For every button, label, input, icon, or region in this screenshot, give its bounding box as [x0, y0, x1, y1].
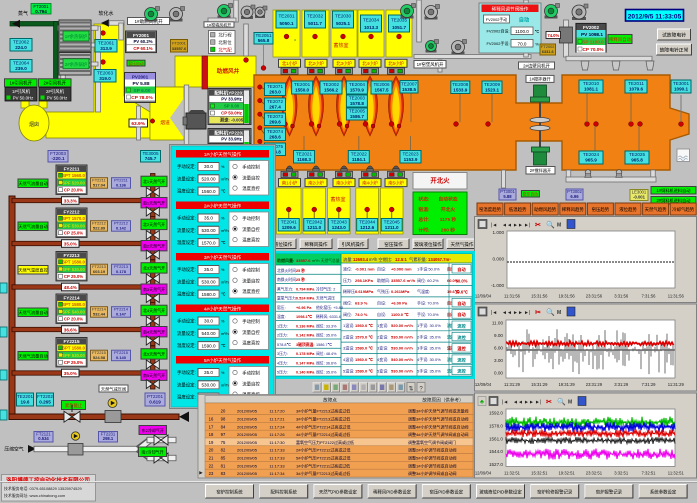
- svg-text:北4小炉: 北4小炉: [362, 60, 378, 67]
- svg-text:|◄: |◄: [491, 310, 497, 316]
- svg-text:4#小炉气量FT2214过高或过低: 4#小炉气量FT2214过高或过低: [296, 431, 350, 437]
- svg-text:流控: 流控: [457, 368, 466, 375]
- svg-text:1580.0 ℃: 1580.0 ℃: [355, 368, 373, 373]
- svg-text:11:32:51: 11:32:51: [668, 471, 685, 476]
- svg-text:1578.8: 1578.8: [350, 101, 364, 106]
- svg-text:530.00 m³/h: 530.00 m³/h: [391, 368, 413, 373]
- svg-text:系统参数设定: 系统参数设定: [650, 488, 677, 495]
- svg-text:阀位: 48.4%: 阀位: 48.4%: [316, 351, 337, 356]
- svg-text:1570.0: 1570.0: [201, 240, 215, 245]
- svg-text:TE2002: TE2002: [323, 82, 340, 87]
- svg-text:23:31:29: 23:31:29: [586, 382, 603, 387]
- svg-text:调整3#小炉天然气调节阀或自动阀: 调整3#小炉天然气调节阀或自动阀: [408, 416, 468, 422]
- svg-text:稀释风调节阀操作: 稀释风调节阀操作: [492, 5, 529, 12]
- svg-text:1533.9: 1533.9: [453, 87, 467, 92]
- svg-text:南1小炉: 南1小炉: [282, 179, 298, 186]
- svg-text:窑压操作: 窑压操作: [384, 241, 403, 248]
- svg-text:FY2001: FY2001: [133, 33, 150, 38]
- svg-text:SP 0.00: SP 0.00: [224, 104, 240, 109]
- svg-text:气温度:: 气温度:: [417, 288, 430, 294]
- svg-text:流控: 流控: [457, 356, 466, 363]
- svg-text:流量设定:: 流量设定:: [177, 381, 196, 388]
- svg-text:269.6: 269.6: [269, 119, 281, 124]
- svg-text:南换火时间:: 南换火时间:: [277, 277, 297, 282]
- svg-text:2手设: 35.0%: 2手设: 35.0%: [417, 333, 441, 339]
- svg-text:TE2030: TE2030: [335, 13, 352, 18]
- svg-text:南2小炉: 南2小炉: [308, 179, 324, 186]
- svg-text:M: M: [557, 223, 561, 229]
- svg-text:16: 16: [209, 417, 214, 422]
- svg-text:5变设:: 5变设:: [377, 367, 388, 373]
- svg-text:技术服务电话: 0379-65108829 1352597: 技术服务电话: 0379-65108829 13525974529: [4, 486, 82, 491]
- svg-text:m³/h: m³/h: [221, 280, 229, 284]
- svg-text:温度设定:: 温度设定:: [177, 239, 196, 246]
- svg-text:北5小炉: 北5小炉: [388, 60, 404, 67]
- svg-text:PV2001: PV2001: [132, 74, 149, 79]
- svg-text:-0.001: -0.001: [633, 195, 646, 200]
- svg-text:319.0: 319.0: [99, 76, 111, 81]
- svg-text:✂: ✂: [535, 222, 541, 229]
- svg-text:CP 70.0%: CP 70.0%: [582, 47, 604, 52]
- svg-text:流量自控: 流量自控: [242, 174, 260, 181]
- svg-text:530.00: 530.00: [201, 383, 215, 388]
- svg-text:TE2045: TE2045: [384, 219, 401, 224]
- svg-text:压力:: 压力:: [343, 277, 352, 283]
- svg-text:蒸气: 蒸气: [18, 10, 28, 17]
- svg-text:1手设: 30.0%: 1手设: 30.0%: [417, 322, 441, 328]
- svg-text:阀位:: 阀位:: [343, 311, 352, 317]
- svg-text:手动设定:: 手动设定:: [177, 318, 196, 325]
- svg-text:蓄热室: 蓄热室: [333, 42, 348, 49]
- svg-text:268.6: 268.6: [269, 134, 281, 139]
- svg-text:48.4%: 48.4%: [64, 285, 77, 290]
- svg-text:总计:: 总计:: [418, 216, 430, 223]
- svg-text:自动状态: 自动状态: [438, 196, 457, 203]
- svg-text:FT2001: FT2001: [172, 40, 187, 45]
- svg-text:天然气PID参数设定: 天然气PID参数设定: [319, 488, 358, 495]
- svg-text:温度直控: 温度直控: [242, 237, 260, 244]
- svg-text:软化水: 软化水: [98, 10, 113, 17]
- svg-text:11:31:56: 11:31:56: [668, 294, 685, 299]
- svg-text:1#搅拌器开: 1#搅拌器开: [529, 76, 550, 83]
- svg-text:2#小炉天然气操作: 2#小炉天然气操作: [204, 202, 242, 209]
- svg-text:75: 75: [221, 440, 226, 445]
- svg-text:稀释风趋势: 稀释风趋势: [562, 206, 585, 213]
- svg-text:565.8: 565.8: [258, 38, 270, 43]
- svg-text:CP 50.0Hz: CP 50.0Hz: [221, 111, 242, 116]
- svg-text:阀位: 35.0%: 阀位: 35.0%: [316, 333, 337, 338]
- svg-text:TE2034: TE2034: [363, 17, 380, 22]
- svg-text:2012/09/05: 2012/09/05: [237, 424, 258, 429]
- svg-text:3手设: 35.0%: 3手设: 35.0%: [417, 345, 441, 351]
- svg-text:PV 50.0Hz: PV 50.0Hz: [47, 96, 68, 101]
- svg-text:33.3%: 33.3%: [64, 199, 77, 204]
- svg-text:天然气流量自动: 天然气流量自动: [18, 180, 47, 187]
- svg-text:玻璃液位操作: 玻璃液位操作: [414, 241, 442, 248]
- svg-text:助燃风:: 助燃风:: [377, 277, 390, 283]
- svg-text:530.00: 530.00: [201, 280, 215, 285]
- svg-text:温度设定:: 温度设定:: [177, 291, 196, 298]
- svg-text:调整4#小炉天然气调节阀或自动阀: 调整4#小炉天然气调节阀或自动阀: [408, 431, 468, 437]
- svg-text:2温设:: 2温设:: [343, 333, 354, 339]
- svg-text:手动控制: 手动控制: [242, 318, 260, 325]
- svg-text:4变设:: 4变设:: [377, 356, 388, 362]
- svg-text:19:31:56: 19:31:56: [558, 294, 575, 299]
- svg-text:19:32:51: 19:32:51: [558, 471, 575, 476]
- svg-text:11:31:56: 11:31:56: [504, 294, 521, 299]
- svg-text:手设: 70.0%: 手设: 70.0%: [417, 311, 439, 317]
- svg-text:TE2011: TE2011: [628, 81, 644, 86]
- svg-text:蒸气压力:: 蒸气压力:: [277, 286, 293, 291]
- svg-text:M: M: [568, 400, 572, 406]
- svg-text:低温趋势: 低温趋势: [509, 206, 527, 213]
- svg-text:2#引风机开: 2#引风机开: [44, 80, 67, 87]
- svg-text:调整4#小炉天然气调节阀或自动阀: 调整4#小炉天然气调节阀或自动阀: [408, 423, 468, 429]
- svg-text:自设:: 自设:: [377, 266, 386, 272]
- svg-text:520.00 m³/h: 520.00 m³/h: [391, 323, 413, 328]
- svg-text:温控: 温控: [457, 345, 466, 352]
- svg-text:35.0: 35.0: [204, 267, 213, 272]
- svg-text:流量设定:: 流量设定:: [177, 330, 196, 337]
- svg-text:✂: ✂: [546, 399, 552, 406]
- svg-text:℃: ℃: [221, 293, 226, 297]
- svg-text:状态:: 状态:: [418, 196, 430, 203]
- svg-text:2012/09/05: 2012/09/05: [237, 463, 258, 468]
- svg-text:他化窑压: +5.88: 他化窑压: +5.88: [316, 305, 343, 310]
- svg-text:窑压自动: 窑压自动: [128, 61, 143, 66]
- svg-text:液位趋势: 液位趋势: [619, 206, 637, 213]
- svg-text:TE2022: TE2022: [351, 151, 368, 156]
- svg-text:计时:: 计时:: [418, 226, 430, 233]
- svg-text:74.0 %: 74.0 %: [355, 312, 368, 317]
- svg-text:调整2#小炉调节阀或自动阀: 调整2#小炉调节阀或自动阀: [408, 447, 456, 453]
- svg-text:0.136 MPa: 0.136 MPa: [296, 324, 315, 328]
- svg-text:PV 33.9Hz: PV 33.9Hz: [221, 137, 242, 142]
- svg-text:流量设定:: 流量设定:: [177, 175, 196, 182]
- svg-text:11:17:20: 11:17:20: [269, 409, 285, 414]
- svg-text:4压力:: 4压力:: [277, 360, 288, 365]
- svg-text:11:32:51: 11:32:51: [504, 471, 521, 476]
- svg-text:℃: ℃: [221, 241, 226, 245]
- svg-text:m³/h 空燃比:: m³/h 空燃比:: [369, 256, 392, 263]
- svg-text:阀位:: 阀位:: [343, 300, 352, 306]
- svg-text:5011.7: 5011.7: [308, 21, 322, 26]
- svg-text:263.0: 263.0: [269, 89, 281, 94]
- svg-text:TE2042: TE2042: [306, 219, 323, 224]
- svg-text:流量自控: 流量自控: [242, 380, 260, 387]
- svg-text:1090.1: 1090.1: [674, 87, 688, 92]
- svg-text:11:17:24: 11:17:24: [269, 424, 285, 429]
- svg-text:540.00 m³/h: 540.00 m³/h: [391, 357, 413, 362]
- svg-text:7:32:51: 7:32:51: [642, 471, 657, 476]
- svg-text:自设:: 自设:: [377, 311, 386, 317]
- svg-text:2#小炉气压PT2212过高或过低: 2#小炉气压PT2212过高或过低: [296, 447, 350, 453]
- svg-text:1570.0 ℃: 1570.0 ℃: [355, 334, 373, 339]
- svg-text:2012/09/05: 2012/09/05: [237, 417, 258, 422]
- svg-text:1#引风机: 1#引风机: [12, 88, 31, 95]
- svg-text:12/09/04: 12/09/04: [475, 471, 492, 476]
- svg-text:5#小炉天然气操作: 5#小炉天然气操作: [204, 357, 242, 364]
- svg-text:烟囱: 烟囱: [29, 121, 39, 128]
- svg-text:1变设:: 1变设:: [377, 322, 388, 328]
- svg-text:83: 83: [221, 471, 226, 476]
- svg-text:阀位: 36.6%: 阀位: 36.6%: [316, 360, 337, 365]
- svg-text:FY2214: FY2214: [63, 296, 80, 301]
- svg-text:20: 20: [209, 448, 214, 453]
- svg-text:35.0%: 35.0%: [64, 242, 77, 247]
- svg-text:手动控制: 手动控制: [242, 164, 260, 171]
- svg-text:南1天然气开: 南1天然气开: [143, 200, 165, 206]
- svg-text:南5天然气开: 南5天然气开: [143, 372, 165, 378]
- svg-text:CP 78.0%: CP 78.0%: [131, 95, 153, 101]
- svg-text:m³/h: m³/h: [221, 177, 229, 181]
- svg-text:74.0%: 74.0%: [547, 33, 559, 38]
- svg-text:故障点: 故障点: [323, 396, 337, 403]
- svg-text:试故障电铃: 试故障电铃: [662, 32, 686, 39]
- svg-text:TE2074: TE2074: [267, 129, 284, 134]
- svg-text:液位操作: 液位操作: [274, 241, 293, 248]
- svg-text:0.619MPa: 0.619MPa: [355, 289, 374, 294]
- svg-text:1.000: 1.000: [493, 230, 505, 235]
- svg-text:℃: ℃: [221, 190, 226, 194]
- svg-text:SPF 530.00: SPF 530.00: [62, 223, 85, 228]
- svg-text:19.6℃: 19.6℃: [455, 290, 468, 295]
- svg-text:天然气流量自动: 天然气流量自动: [18, 223, 47, 230]
- svg-text:TE2001: TE2001: [294, 82, 311, 87]
- svg-text:0.00: 0.00: [494, 371, 503, 376]
- svg-text:SPF 520.00: SPF 520.00: [62, 180, 85, 185]
- svg-text:m³/h: m³/h: [221, 332, 229, 336]
- svg-text:1567.5: 1567.5: [374, 88, 388, 93]
- svg-text:1527.0: 1527.0: [489, 462, 503, 467]
- svg-text:◄◄: ◄◄: [502, 310, 512, 316]
- svg-text:南5小炉: 南5小炉: [388, 179, 404, 186]
- svg-text:烟道: 烟道: [160, 119, 170, 126]
- svg-text:天然气进压: 天然气进压: [316, 296, 335, 301]
- svg-text:+6.00 Pa: +6.00 Pa: [391, 301, 408, 306]
- svg-text:18: 18: [209, 432, 214, 437]
- svg-text:温度设定:: 温度设定:: [177, 342, 196, 349]
- svg-text:TE2062: TE2062: [13, 39, 30, 44]
- svg-text:SPF 530.00: SPF 530.00: [62, 267, 85, 272]
- svg-text:FV2002自设:: FV2002自设:: [486, 28, 509, 34]
- svg-text:1586.7℃: 1586.7℃: [316, 343, 333, 347]
- svg-text:6331.6: 6331.6: [542, 49, 555, 54]
- svg-text:2012/09/05: 2012/09/05: [237, 409, 258, 414]
- svg-text:SP 6.00: SP 6.00: [134, 88, 151, 94]
- svg-text:33557.6: 33557.6: [296, 258, 311, 263]
- svg-text:530.00 m³/h: 530.00 m³/h: [391, 334, 413, 339]
- svg-text:81: 81: [221, 463, 226, 468]
- svg-text:3磁顶高温:: 3磁顶高温:: [296, 342, 315, 347]
- svg-text:1#窑墙风机开: 1#窑墙风机开: [207, 21, 231, 27]
- svg-text:2压力:: 2压力:: [277, 333, 288, 338]
- svg-text:1098.1℃: 1098.1℃: [296, 314, 313, 319]
- svg-text:天然气温度直控: 天然气温度直控: [18, 267, 48, 274]
- svg-text:自动: 自动: [457, 311, 466, 318]
- svg-text:►|: ►|: [524, 223, 530, 229]
- svg-text:窑炉控制系统: 窑炉控制系统: [216, 488, 243, 495]
- svg-text:22: 22: [209, 463, 214, 468]
- svg-text:CP 20.0%: CP 20.0%: [64, 188, 83, 193]
- svg-text:1538.5: 1538.5: [402, 87, 416, 92]
- svg-text:530.00 m³/h: 530.00 m³/h: [391, 346, 413, 351]
- svg-text:1580.0 ℃: 1580.0 ℃: [355, 346, 373, 351]
- svg-text:气累积量:: 气累积量:: [409, 256, 427, 263]
- svg-text:稀释风: 6331.6: 稀释风: 6331.6: [316, 314, 341, 319]
- svg-text:窑压PID参数设定: 窑压PID参数设定: [429, 488, 463, 495]
- svg-text:窑温度趋势: 窑温度趋势: [479, 206, 502, 213]
- svg-text:85: 85: [221, 456, 226, 461]
- svg-text:2#边壁风机开: 2#边壁风机开: [523, 62, 550, 69]
- svg-text:手动控制: 手动控制: [242, 267, 260, 274]
- svg-text:1081.1: 1081.1: [584, 87, 598, 92]
- svg-text:开北火: 开北火: [430, 176, 450, 185]
- svg-text:2012/09/05: 2012/09/05: [237, 448, 258, 453]
- svg-text:11:17:33: 11:17:33: [269, 456, 285, 461]
- svg-text:助燃风趋势: 助燃风趋势: [534, 206, 557, 213]
- svg-text:温度直控: 温度直控: [242, 288, 260, 295]
- svg-text:1压力:: 1压力:: [277, 323, 288, 328]
- svg-text:11:17:33: 11:17:33: [269, 448, 285, 453]
- svg-text:北5天然气开: 北5天然气开: [143, 351, 165, 357]
- svg-text:540.00: 540.00: [201, 331, 215, 336]
- svg-text:FY2213: FY2213: [63, 253, 80, 258]
- svg-text:3压力:: 3压力:: [277, 351, 288, 356]
- svg-text:0.142 MPa: 0.142 MPa: [296, 334, 315, 338]
- svg-text:富氧空气压力PT2122过高或过低: 富氧空气压力PT2122过高或过低: [296, 439, 354, 445]
- svg-text:PV 60.2%: PV 60.2%: [133, 39, 152, 44]
- svg-text:南4天然气开: 南4天然气开: [143, 329, 165, 335]
- svg-text:|◄: |◄: [491, 223, 497, 229]
- svg-text:1#饲料机进料自动: 1#饲料机进料自动: [657, 187, 691, 194]
- svg-text:手动控制: 手动控制: [242, 370, 260, 377]
- svg-text:SPT 1570.0: SPT 1570.0: [62, 216, 85, 221]
- svg-text:11:17:26: 11:17:26: [269, 432, 285, 437]
- svg-text:FV2002: FV2002: [583, 25, 600, 30]
- svg-text:自动: 自动: [457, 300, 466, 307]
- svg-text:助燃风量:: 助燃风量:: [277, 257, 294, 263]
- svg-text:2#引风机: 2#引风机: [46, 88, 65, 95]
- svg-text:12.5:1: 12.5:1: [395, 257, 408, 262]
- svg-text:+6.96 Pa: +6.96 Pa: [296, 306, 312, 310]
- svg-text:0.147 MPa: 0.147 MPa: [296, 361, 315, 365]
- svg-text:手动控制: 手动控制: [242, 215, 260, 222]
- svg-text:CP 25.0%: CP 25.0%: [64, 231, 83, 236]
- svg-text:PV 50.0Hz: PV 50.0Hz: [13, 96, 34, 101]
- svg-text:532.44: 532.44: [93, 311, 106, 316]
- svg-text:23: 23: [209, 471, 214, 476]
- svg-text:0.136: 0.136: [116, 182, 127, 187]
- svg-text:1#窑堡风机开: 1#窑堡风机开: [417, 61, 444, 68]
- svg-text:0.140: 0.140: [116, 355, 127, 360]
- svg-text:SPT 1560.0: SPT 1560.0: [62, 173, 85, 178]
- svg-text:TE2061: TE2061: [98, 40, 115, 45]
- svg-text:窑压自动: 窑压自动: [523, 192, 538, 197]
- svg-text:11:31:29: 11:31:29: [504, 382, 521, 387]
- svg-text:自设:: 自设:: [377, 300, 386, 306]
- svg-text:0.794 MPa: 0.794 MPa: [296, 287, 315, 291]
- svg-text:578.8℃: 578.8℃: [277, 343, 292, 347]
- svg-text:TE2044: TE2044: [359, 219, 376, 224]
- svg-text:►|: ►|: [535, 400, 541, 406]
- svg-text:12693.4: 12693.4: [353, 257, 369, 262]
- svg-text:98: 98: [221, 417, 226, 422]
- svg-text:3温设:: 3温设:: [343, 345, 354, 351]
- svg-text:5手设: 35.0%: 5手设: 35.0%: [417, 367, 441, 373]
- svg-text:手设: 70.0%: 手设: 70.0%: [417, 300, 439, 306]
- svg-text:流量自控: 流量自控: [242, 277, 260, 284]
- svg-text:TE2072: TE2072: [267, 99, 284, 104]
- svg-text:北2天然气开: 北2天然气开: [143, 221, 165, 227]
- svg-text:30.0: 30.0: [204, 319, 213, 324]
- svg-text:267.4: 267.4: [269, 104, 281, 109]
- svg-text:流控: 流控: [457, 334, 466, 341]
- svg-text:5050.1: 5050.1: [279, 21, 293, 26]
- svg-text:4#小炉天然气操作: 4#小炉天然气操作: [204, 305, 242, 312]
- svg-text:CP 25.0%: CP 25.0%: [64, 360, 83, 365]
- svg-text:1566.2: 1566.2: [324, 88, 338, 93]
- svg-text:♣: ♣: [480, 400, 484, 406]
- svg-text:70.0: 70.0: [518, 42, 527, 47]
- svg-text:0.619: 0.619: [149, 400, 161, 405]
- svg-text:M: M: [557, 310, 561, 316]
- svg-text:调整5#小炉调节阀或自动阀: 调整5#小炉调节阀或自动阀: [408, 455, 456, 461]
- svg-text:1560.0: 1560.0: [201, 189, 215, 194]
- svg-text:TE3001: TE3001: [673, 81, 690, 86]
- svg-text:流量设定:: 流量设定:: [177, 278, 196, 285]
- svg-text:1153.9: 1153.9: [404, 157, 418, 162]
- svg-text:北2小炉: 北2小炉: [308, 60, 324, 67]
- svg-text:1#小炉气压PT2211过高或过低: 1#小炉气压PT2211过高或过低: [296, 462, 350, 468]
- svg-text:✂: ✂: [535, 310, 541, 317]
- svg-text:1079.6: 1079.6: [629, 87, 643, 92]
- svg-text:3变设:: 3变设:: [377, 345, 388, 351]
- svg-text:阀位: 35.0%: 阀位: 35.0%: [316, 370, 337, 375]
- svg-text:33557.6: 33557.6: [172, 46, 187, 51]
- svg-text:%: %: [535, 42, 539, 47]
- svg-text:239.0: 239.0: [15, 66, 27, 71]
- svg-text:北限位: 北限位: [218, 39, 232, 46]
- svg-text:流量自控: 流量自控: [242, 329, 260, 336]
- svg-text:-1.000: -1.000: [491, 283, 504, 288]
- svg-text:手动设定:: 手动设定:: [177, 266, 196, 273]
- svg-text:富氧气压力:: 富氧气压力:: [277, 296, 297, 301]
- svg-text:1243.0: 1243.0: [332, 225, 346, 230]
- svg-text:6.00: 6.00: [494, 346, 503, 351]
- svg-text:TE2073: TE2073: [267, 114, 284, 119]
- svg-text:窑压趋势: 窑压趋势: [592, 206, 610, 213]
- svg-text:-0.001 mm: -0.001 mm: [355, 267, 375, 272]
- svg-text:1211.0: 1211.0: [385, 225, 399, 230]
- svg-text:11:17:34: 11:17:34: [269, 471, 285, 476]
- svg-text:11:17:30: 11:17:30: [269, 440, 285, 445]
- svg-text:1560.0 ℃: 1560.0 ℃: [355, 323, 373, 328]
- svg-text:北换火时间:: 北换火时间:: [277, 268, 297, 273]
- svg-text:调整3#小炉调节阀或自动阀: 调整3#小炉调节阀或自动阀: [408, 470, 456, 476]
- svg-text:97: 97: [221, 432, 226, 437]
- svg-text:TE2006: TE2006: [373, 82, 390, 87]
- svg-text:3.00: 3.00: [494, 358, 503, 363]
- svg-text:5温设:: 5温设:: [343, 367, 354, 373]
- svg-text:1561.0: 1561.0: [489, 436, 503, 441]
- svg-text:阀位: 60.2%: 阀位: 60.2%: [417, 277, 439, 283]
- svg-text:►►: ►►: [513, 310, 523, 316]
- svg-text:SP 1100.0: SP 1100.0: [582, 40, 604, 45]
- svg-text:530.00: 530.00: [201, 228, 215, 233]
- svg-text:天然气流量自动: 天然气流量自动: [18, 309, 47, 316]
- svg-text:FV2002手设:: FV2002手设:: [486, 40, 509, 46]
